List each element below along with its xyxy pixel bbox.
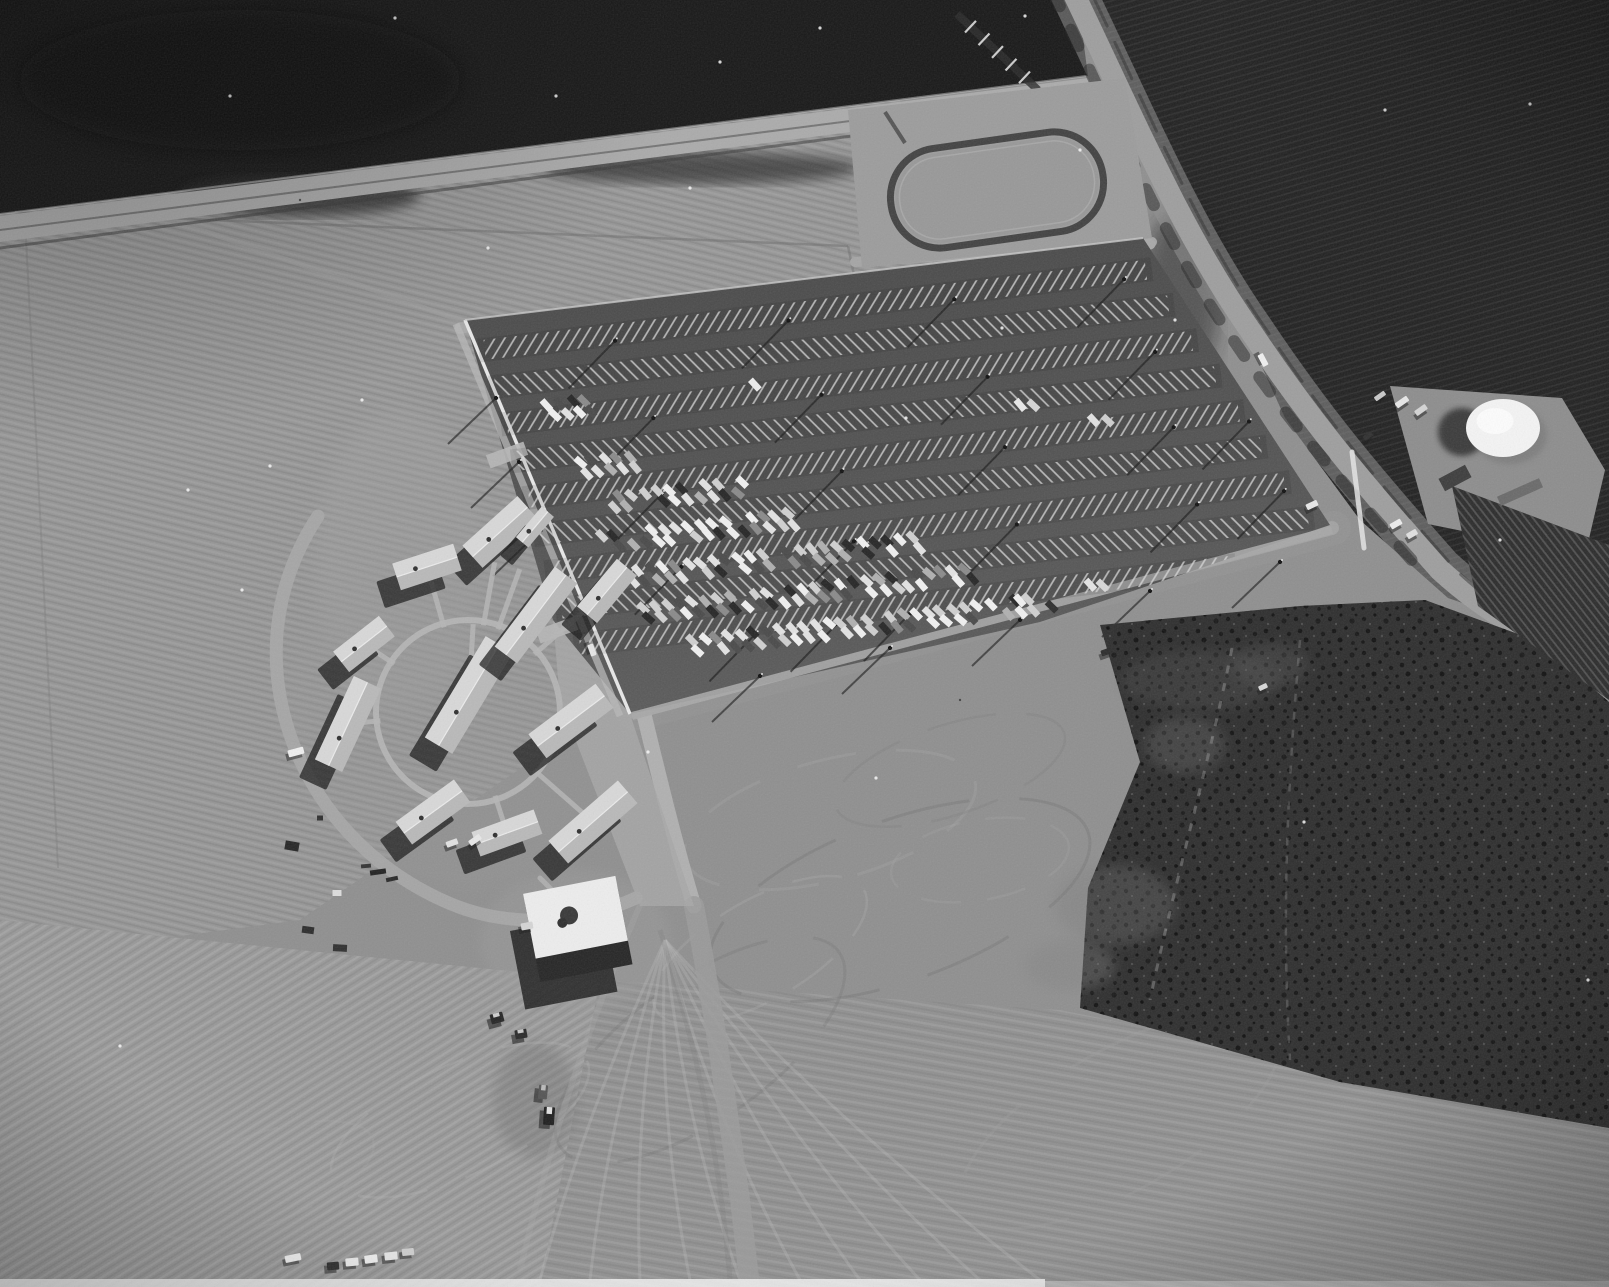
aerial-photo-canvas: [0, 0, 1609, 1287]
photo-grain: [0, 0, 1609, 1287]
aerial-photograph: [0, 0, 1609, 1287]
photo-artifacts: [0, 0, 1609, 1287]
